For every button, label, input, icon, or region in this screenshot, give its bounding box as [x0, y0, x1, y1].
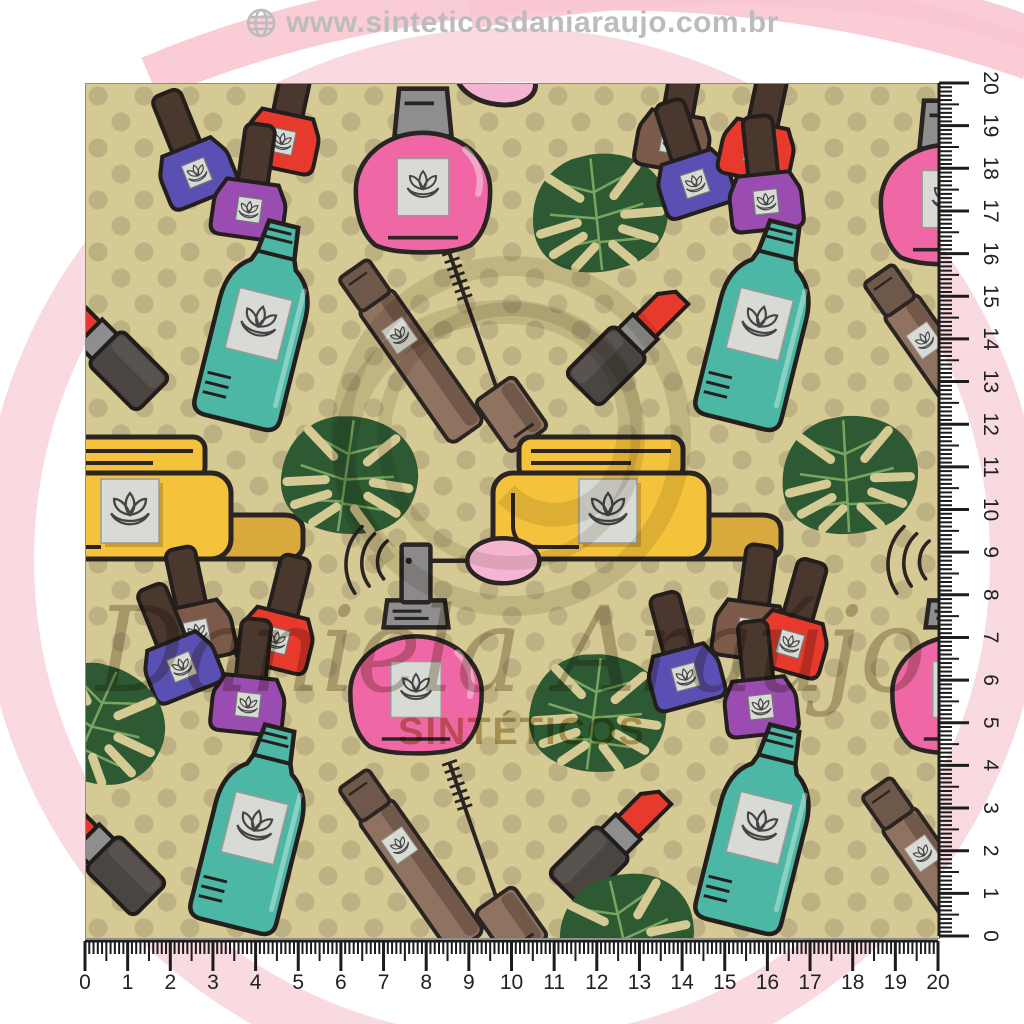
ruler-label: 13: [628, 971, 651, 994]
ruler-label: 4: [250, 971, 262, 994]
watermark-caps: SINTÉTICOS: [398, 709, 646, 753]
ruler-label: 2: [164, 971, 176, 994]
ruler-label: 9: [463, 971, 475, 994]
website-url: www.sinteticosdaniaraujo.com.br: [245, 6, 779, 40]
ruler-label: 10: [979, 498, 999, 521]
ruler-label: 0: [79, 971, 91, 994]
pattern-swatch-frame: Daniela Araújo SINTÉTICOS: [85, 83, 940, 939]
ruler-label: 5: [292, 971, 304, 994]
fabric-swatch-image: www.sinteticosdaniaraujo.com.br: [0, 0, 1024, 1024]
ruler-label: 11: [979, 456, 999, 478]
bottom-ruler: 01234567891011121314151617181920: [60, 939, 980, 999]
ruler-label: 8: [420, 971, 432, 994]
ruler-label: 10: [500, 971, 523, 994]
ruler-label: 14: [670, 971, 694, 994]
ruler-label: 8: [979, 589, 999, 601]
ruler-label: 1: [979, 888, 999, 900]
ruler-label: 6: [979, 674, 999, 686]
ruler-label: 7: [378, 971, 390, 994]
ruler-label: 7: [979, 632, 999, 644]
ruler-label: 12: [585, 971, 608, 994]
watermark-script: Daniela Araújo: [94, 581, 926, 719]
ruler-label: 18: [979, 157, 999, 180]
ruler-label: 20: [979, 71, 999, 94]
ruler-label: 20: [926, 971, 949, 994]
globe-icon: [245, 7, 277, 39]
ruler-label: 9: [979, 546, 999, 558]
ruler-label: 15: [713, 971, 736, 994]
ruler-label: 15: [979, 285, 999, 308]
ruler-label: 1: [122, 971, 134, 994]
ruler-label: 18: [841, 971, 864, 994]
right-ruler: 20191817161514131211109876543210: [937, 58, 999, 958]
ruler-label: 0: [979, 930, 999, 942]
ruler-label: 2: [979, 845, 999, 857]
ruler-label: 17: [798, 971, 821, 994]
ruler-label: 19: [884, 971, 907, 994]
ruler-label: 3: [207, 971, 219, 994]
ruler-label: 19: [979, 114, 999, 137]
ruler-label: 4: [979, 760, 999, 772]
ruler-label: 12: [979, 413, 999, 436]
ruler-label: 13: [979, 370, 999, 393]
ruler-label: 3: [979, 802, 999, 814]
ruler-label: 6: [335, 971, 347, 994]
pattern-swatch: Daniela Araújo SINTÉTICOS: [86, 84, 939, 938]
ruler-label: 14: [979, 327, 999, 351]
ruler-label: 11: [543, 971, 565, 994]
ruler-label: 16: [756, 971, 779, 994]
ruler-label: 16: [979, 242, 999, 265]
ruler-label: 17: [979, 199, 999, 222]
ruler-label: 5: [979, 717, 999, 729]
website-url-text: www.sinteticosdaniaraujo.com.br: [286, 6, 779, 40]
